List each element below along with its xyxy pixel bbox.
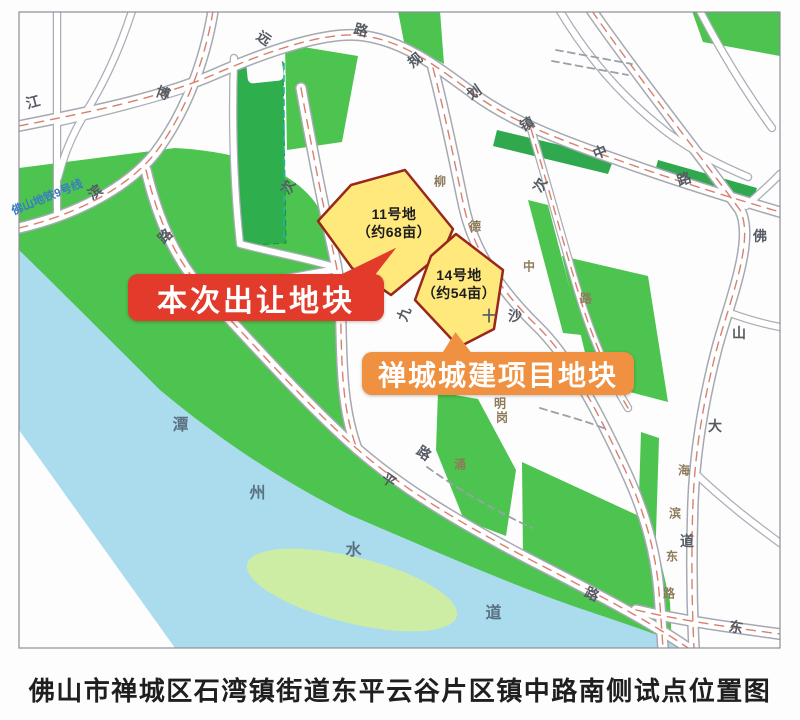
parcel-11-name: 11号地 (341, 205, 447, 223)
parcel-11-label: 11号地 （约68亩） (341, 205, 447, 241)
caption: 佛山市禅城区石湾镇街道东平云谷片区镇中路南侧试点位置图 (0, 658, 800, 720)
map-canvas (0, 0, 800, 658)
parcel-14-label: 14号地 （约54亩） (406, 266, 512, 302)
callout-current-sale-parcel: 本次出让地块 (128, 274, 384, 321)
parcel-11-area: （约68亩） (341, 223, 447, 241)
map: 江博远路规划镇中路滨路次次九十沙平路路东佛山大道柳德中路明岗涌海滨东路潭州水道 … (0, 0, 800, 658)
parcel-14-area: （约54亩） (406, 284, 512, 302)
callout-chancheng-project-text: 禅城城建项目地块 (378, 354, 618, 394)
screenshot: 江博远路规划镇中路滨路次次九十沙平路路东佛山大道柳德中路明岗涌海滨东路潭州水道 … (0, 0, 800, 720)
callout-chancheng-project-parcel: 禅城城建项目地块 (362, 352, 634, 395)
callout-current-sale-text: 本次出让地块 (157, 276, 355, 320)
parcel-14-name: 14号地 (406, 266, 512, 284)
